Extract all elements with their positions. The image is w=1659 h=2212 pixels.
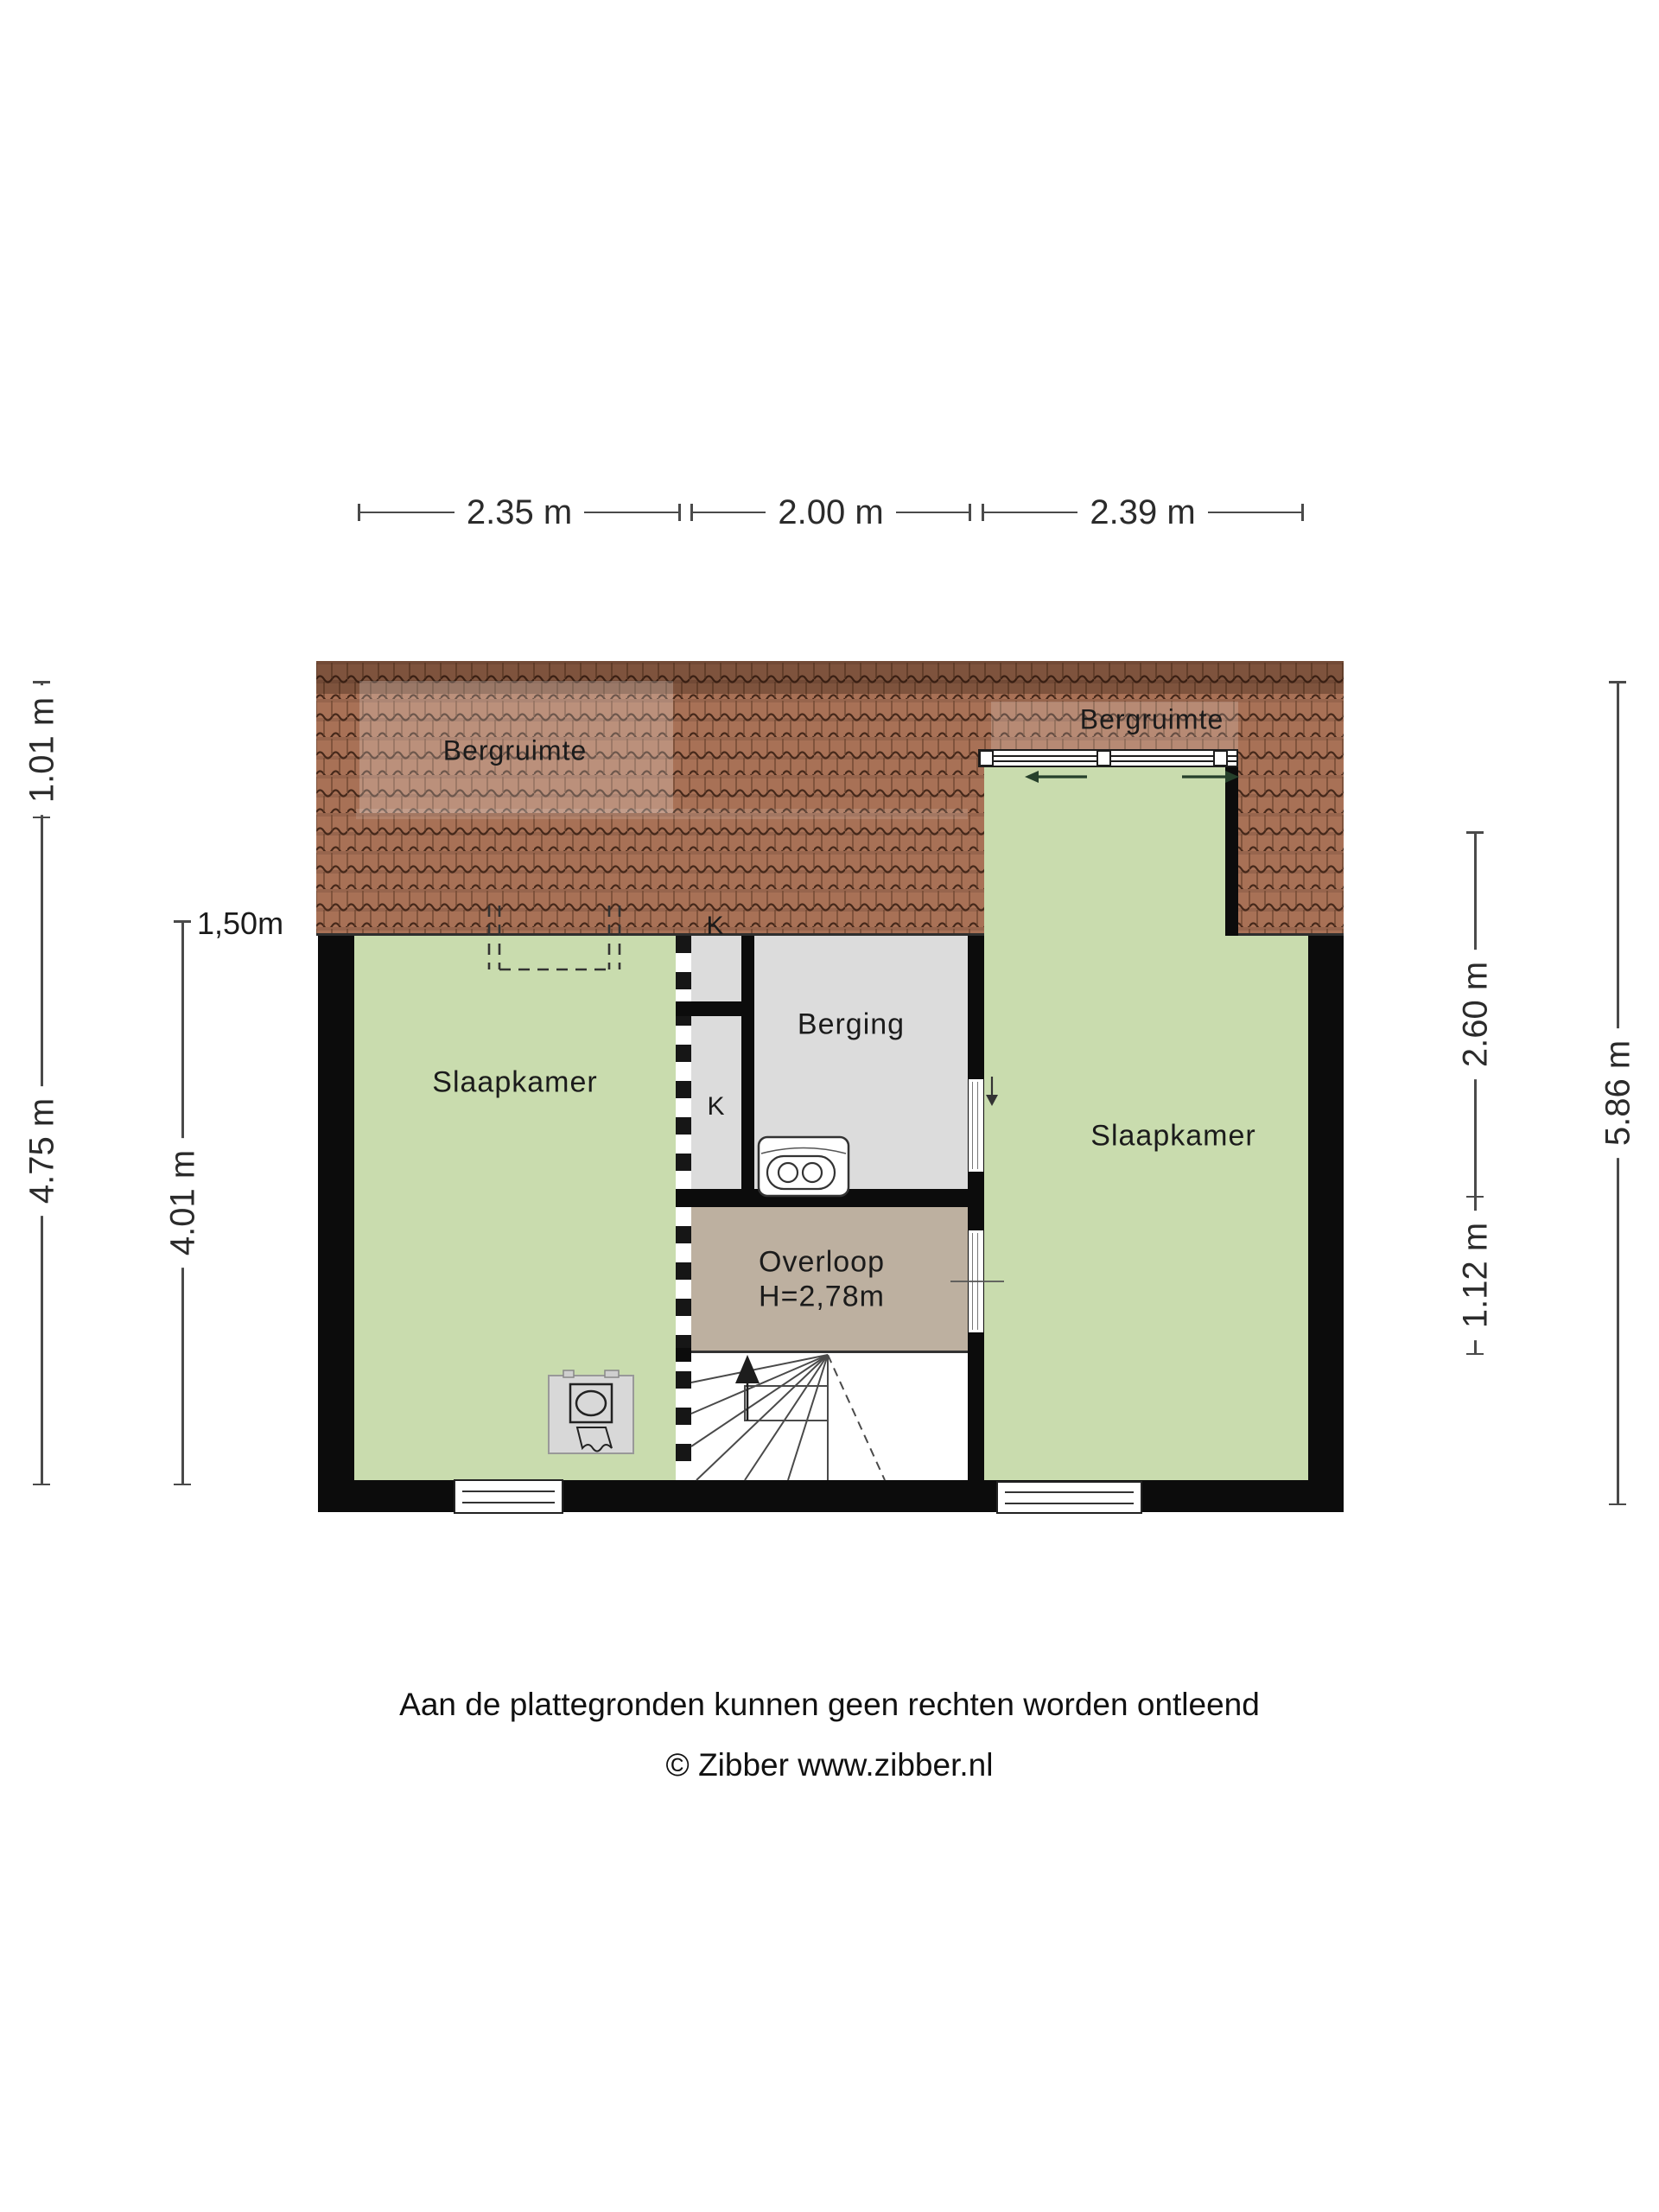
dormer-dashed-outline	[489, 906, 620, 969]
label-bergruimte-left: Bergruimte	[443, 735, 588, 767]
label-berging: Berging	[798, 1008, 905, 1042]
marker-1-50m: 1,50m	[197, 906, 283, 942]
sliding-door-arrow-left	[1025, 771, 1087, 783]
dimension-top-2-39: 2.39 m	[982, 493, 1304, 531]
label-overloop-height: H=2,78m	[759, 1281, 885, 1314]
stairs	[691, 1355, 885, 1480]
toilet-icon	[759, 1137, 849, 1196]
label-slaapkamer-right: Slaapkamer	[1090, 1120, 1255, 1154]
label-closet-lower: K	[707, 1092, 725, 1122]
label-slaapkamer-left: Slaapkamer	[432, 1066, 597, 1100]
disclaimer: Aan de plattegronden kunnen geen rechten…	[0, 1675, 1659, 1796]
dimension-top-2-00: 2.00 m	[690, 493, 971, 531]
label-bergruimte-right: Bergruimte	[1080, 704, 1224, 736]
label-overloop: Overloop	[759, 1246, 885, 1280]
sliding-door-arrow-right	[1182, 771, 1239, 783]
label-closet-upper: K	[706, 912, 724, 941]
dimension-top-2-35: 2.35 m	[358, 493, 681, 531]
stairs-up-arrow	[735, 1355, 760, 1421]
door-swing-arrow-down	[986, 1077, 998, 1106]
disclaimer-line1: Aan de plattegronden kunnen geen rechten…	[0, 1675, 1659, 1735]
floorplan-page: Bergruimte Bergruimte Slaapkamer Slaapka…	[0, 0, 1659, 2212]
washbasin-icon	[549, 1370, 633, 1453]
disclaimer-line2: © Zibber www.zibber.nl	[0, 1735, 1659, 1796]
